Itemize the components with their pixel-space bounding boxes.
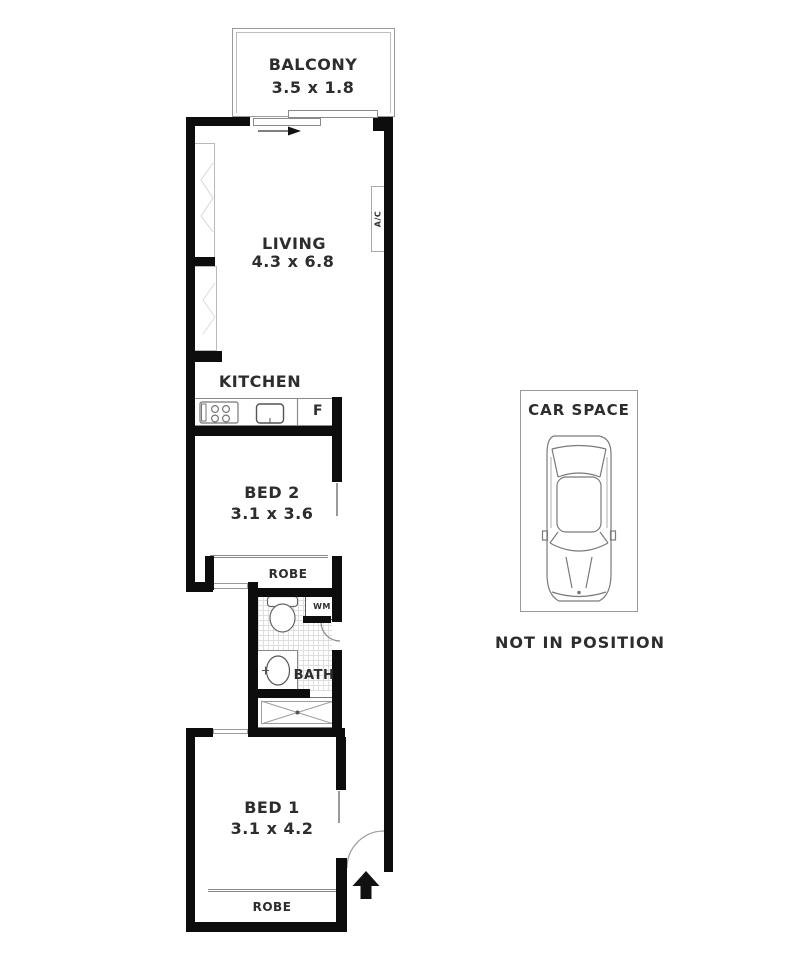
bed2-door-leaf [336, 483, 338, 516]
wall-left-lower [186, 728, 195, 932]
window-bed1 [213, 729, 248, 734]
shower-tray [257, 697, 338, 728]
sliding-door-panel [253, 118, 321, 126]
entry-arrow-icon [353, 871, 380, 899]
wall-stub-a [186, 257, 215, 266]
car-space-note: NOT IN POSITION [495, 633, 665, 652]
fridge-label: F [313, 403, 323, 419]
bath-label: BATH [294, 668, 335, 683]
balcony-label: BALCONY [269, 55, 358, 74]
robe2-label: ROBE [269, 567, 308, 581]
sliding-direction-arrow-icon [258, 127, 301, 136]
robe2-sliding-door [210, 555, 328, 558]
window-bed2 [213, 583, 248, 589]
sliding-door-panel [288, 110, 378, 118]
wall-wm-niche [303, 616, 331, 623]
wall-bath-right-lower [332, 650, 342, 737]
bed2-label: BED 2 [244, 483, 300, 502]
ac-label: A/C [374, 211, 383, 227]
wall-bath-top [248, 588, 342, 597]
wall-stub-b [186, 351, 222, 362]
kitchen-label: KITCHEN [219, 372, 301, 391]
wall-robe2-stub [205, 556, 214, 590]
wall-bed2-top [186, 426, 342, 436]
wm-label: WM [313, 602, 331, 611]
wall-bed2-right-upper [332, 397, 342, 482]
car-space-label: CAR SPACE [528, 401, 630, 419]
wall-right [384, 117, 393, 872]
living-dims: 4.3 x 6.8 [252, 252, 335, 271]
cupboard [194, 143, 215, 258]
wall-top-left [186, 117, 250, 126]
living-label: LIVING [262, 234, 326, 253]
floor-plan: BALCONY 3.5 x 1.8 A/C LIVING 4.3 x 6.8 K… [0, 0, 800, 963]
bed1-label: BED 1 [244, 798, 300, 817]
wall-bed1-right-upper [336, 737, 346, 790]
wall-bottom [186, 922, 347, 932]
cupboard [194, 266, 217, 351]
balcony-dims: 3.5 x 1.8 [272, 78, 355, 97]
entry-door-arc [347, 831, 384, 868]
wall-shower-divider [248, 689, 310, 698]
robe1-label: ROBE [253, 900, 292, 914]
wall-bed1-right-lower [336, 858, 347, 932]
car-space-outline [520, 390, 638, 612]
vanity [257, 650, 298, 692]
wall-bed1-top-left [186, 728, 213, 737]
bed1-dims: 3.1 x 4.2 [231, 819, 314, 838]
wall-bath-left [248, 582, 258, 737]
shower-inner [261, 701, 334, 724]
robe1-sliding-door [208, 889, 337, 892]
bed1-door-leaf [338, 791, 340, 823]
bed2-dims: 3.1 x 3.6 [231, 504, 314, 523]
wall-bed1-top-right [248, 728, 345, 737]
